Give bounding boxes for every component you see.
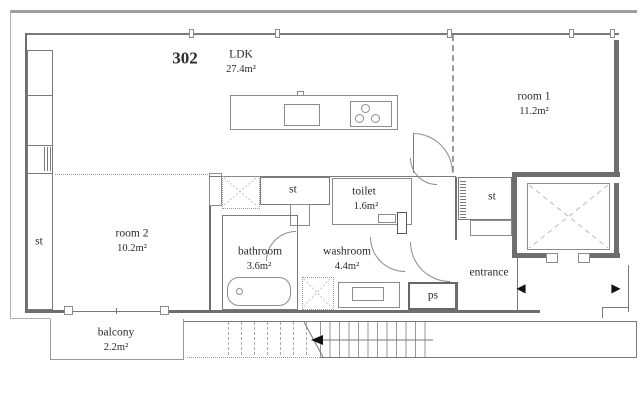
bathroom-area: 3.6m² [247,262,271,273]
window-mullion [189,29,194,38]
shelf-line [27,173,53,174]
balcony-left-wall [50,319,51,360]
hall-entrance-wall-b [455,282,457,312]
room1-area: 11.2m² [519,107,548,118]
shelf-line [27,145,53,146]
vanity-sink [352,287,384,301]
balcony-right-wall [183,319,184,360]
washroom-area: 4.4m² [335,262,359,273]
stair-band-bottom-dotted [187,357,320,358]
elevator-door-jamb [578,253,590,263]
corridor-right-wall [628,265,629,312]
door-arc-toilet [410,158,437,185]
burner-icon [361,104,370,113]
elevator-right-wall [614,183,619,258]
corridor-step-side [602,307,603,318]
corridor-step-top [602,307,628,308]
ldk-room1-partition [452,35,454,172]
storage-entrance-label: st [488,191,496,203]
room1-right-wall [614,40,619,173]
elevator-top-wall [512,172,620,177]
bathtub-drain [236,288,243,295]
ldk-area: 27.4m² [226,65,256,76]
balcony-window-tick [116,308,117,314]
room2-area: 10.2m² [117,244,147,255]
balcony-label: balcony [98,327,134,339]
ps-label: ps [428,290,438,302]
room1-label: room 1 [518,91,551,103]
door-jamb-post [209,173,222,206]
outer-top-wall [10,10,637,13]
bathroom-label: bathroom [238,246,282,258]
entrance-label: entrance [470,267,509,279]
burner-icon [371,114,380,123]
closet-hatch [44,147,53,171]
storage-left-label: st [35,236,43,248]
window-jamb-right [160,306,169,315]
unit-number: 302 [172,50,198,67]
room2-label: room 2 [116,228,149,240]
window-mullion [275,29,280,38]
left-arrow-icon: ◀ [516,282,525,294]
elevator-cab [527,183,610,250]
outer-left-foot [10,318,50,319]
bottom-wall-right [163,310,540,313]
elevator-door-jamb [546,253,558,263]
hall-entrance-wall-a [455,177,457,240]
stair-band-bottom [320,357,637,358]
elevator-left-wall [512,172,517,258]
stair-band-right [636,322,637,358]
shelf-line [27,95,53,96]
unit-top-wall [25,33,619,35]
burner-icon [355,114,364,123]
door-arc-entrance [410,242,450,282]
ldk-label: LDK [229,49,253,61]
window-mullion [569,29,574,38]
washer-pan [302,277,334,310]
storage-left-column [27,50,53,310]
storage-hall-label: st [289,184,297,196]
door-arc-washroom [370,237,405,272]
elevator-bottom-right [590,253,620,258]
ldk-room2-divider [55,174,222,175]
floor-plan: 302 LDK 27.4m² room 1 11.2m² room 2 10.2… [0,0,640,402]
toilet-basin [378,214,396,223]
balcony-bottom-wall [50,359,184,360]
stair-treads-hidden [228,322,308,357]
kitchen-sink [284,104,320,126]
toilet-area: 1.6m² [354,202,378,213]
storage-entrance-box [458,177,512,220]
window-mullion [610,29,615,38]
outer-left-wall [10,10,11,319]
stair-treads [320,322,433,357]
kitchen-tap [297,91,304,96]
toilet-label: toilet [352,186,376,198]
balcony-area: 2.2m² [104,343,128,354]
window-jamb-left [64,306,73,315]
closet-hatch [460,180,466,218]
washer-pan [222,176,260,209]
balcony-window [68,311,167,312]
right-arrow-icon: ▶ [611,282,620,294]
washroom-label: washroom [323,246,371,258]
shoe-cabinet [470,220,512,236]
door-leaf [397,212,407,234]
